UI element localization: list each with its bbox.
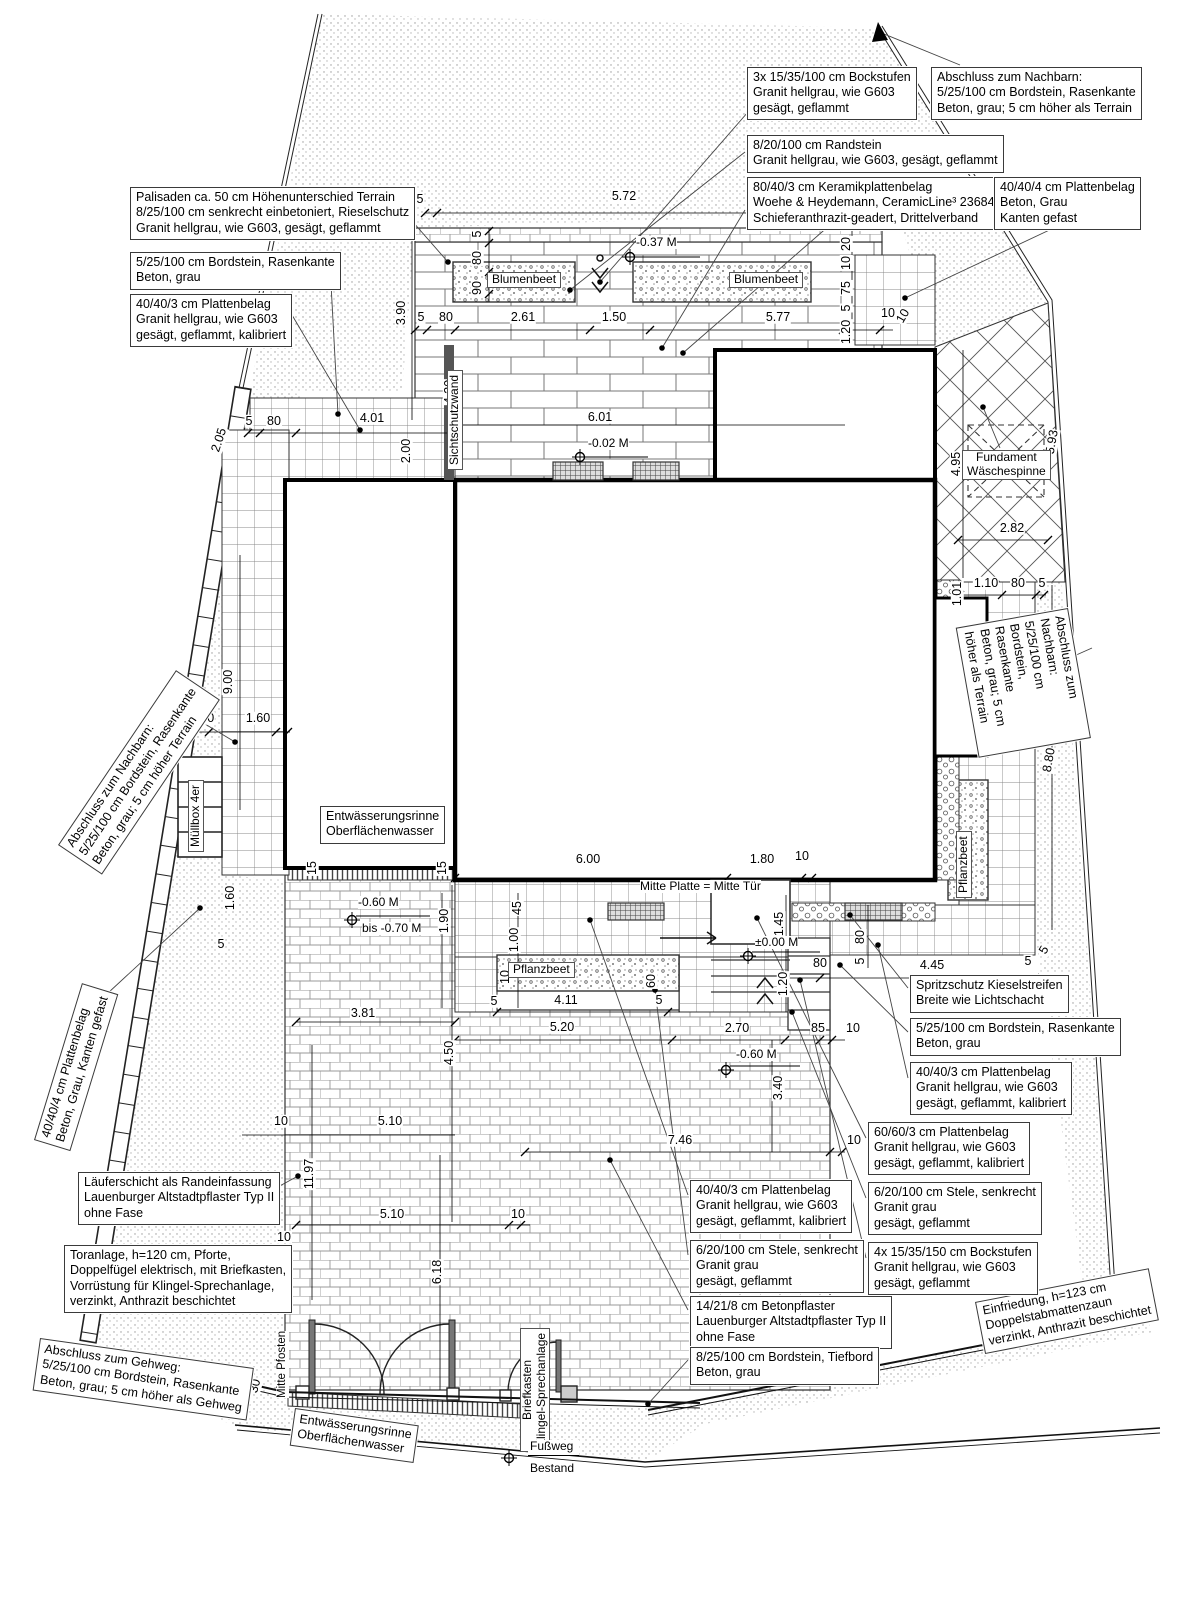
dim: 5 <box>655 994 664 1007</box>
dim: 80 <box>1010 577 1026 590</box>
annotation-stele-mid: 6/20/100 cm Stele, senkrecht Granit grau… <box>690 1240 864 1293</box>
annotation-palisaden: Palisaden ca. 50 cm Höhenunterschied Ter… <box>130 187 415 240</box>
dim: 5 <box>217 938 226 951</box>
dim: 80 <box>266 415 282 428</box>
dim: 4.01 <box>359 412 385 425</box>
annotation-bordstein-right: 5/25/100 cm Bordstein, Rasenkante Beton,… <box>910 1018 1121 1056</box>
dim: 5 <box>416 193 425 206</box>
dim: 90 <box>471 280 484 296</box>
annotation-laeuferschicht: Läuferschicht als Randeinfassung Lauenbu… <box>78 1172 280 1225</box>
dim: 3.90 <box>395 300 408 326</box>
label-bestand: Bestand <box>528 1462 576 1475</box>
dim: 80 <box>471 250 484 266</box>
dim: 2.82 <box>999 522 1025 535</box>
annotation-bockstufen-4x: 4x 15/35/150 cm Bockstufen Granit hellgr… <box>868 1242 1038 1295</box>
dim: 80 <box>438 311 454 324</box>
dim: 1.90 <box>438 908 451 934</box>
dim: 10 <box>273 1115 289 1128</box>
dim: 5 <box>1024 955 1033 968</box>
annotation-toranlage: Toranlage, h=120 cm, Pforte, Doppelfügel… <box>64 1245 292 1313</box>
dim: 5 <box>417 311 426 324</box>
annotation-abschluss-nachbar-top: Abschluss zum Nachbarn: 5/25/100 cm Bord… <box>931 67 1142 120</box>
dim: 1.00 <box>508 927 521 953</box>
label-mitte-pfosten: Mitte Pfosten <box>276 1331 289 1398</box>
annotation-platten-403-right: 40/40/3 cm Plattenbelag Granit hellgrau,… <box>910 1062 1072 1115</box>
dim: 6.01 <box>587 411 613 424</box>
annotation-randstein: 8/20/100 cm Randstein Granit hellgrau, w… <box>747 135 1004 173</box>
dim: 10 <box>510 1208 526 1221</box>
dim: 3.81 <box>350 1007 376 1020</box>
annotation-platten-404-top: 40/40/4 cm Plattenbelag Beton, Grau Kant… <box>994 177 1141 230</box>
dim: 15 <box>436 860 449 876</box>
dim: 5.20 <box>549 1021 575 1034</box>
dim: 1.80 <box>749 853 775 866</box>
dim: 3.40 <box>772 1075 785 1101</box>
dim: 10 <box>276 1231 292 1244</box>
site-plan: Palisaden ca. 50 cm Höhenunterschied Ter… <box>0 0 1200 1600</box>
dim: 1.50 <box>601 311 627 324</box>
annotation-bockstufen-3x: 3x 15/35/100 cm Bockstufen Granit hellgr… <box>747 67 917 120</box>
annotation-abschluss-nachbar-right: Abschluss zum Nachbarn: 5/25/100 cm Bord… <box>956 608 1091 758</box>
dim: 10 <box>794 850 810 863</box>
dim: 6.00 <box>575 853 601 866</box>
label-fussweg: Fußweg <box>528 1440 579 1456</box>
dim: 1.20 <box>777 971 790 997</box>
dim: 1.20 <box>840 319 853 345</box>
elevation-002: -0.02 M <box>588 437 629 450</box>
label-mitte-platte: Mitte Platte = Mitte Tür <box>640 880 761 893</box>
label-blumenbeet-1: Blumenbeet <box>487 272 561 288</box>
dim: 2.00 <box>400 438 413 464</box>
annotation-rinne-garage: Entwässerungsrinne Oberflächenwasser <box>320 806 445 844</box>
dim: 2.61 <box>510 311 536 324</box>
label-briefkasten: Briefkasten Klingel-Sprechanlage <box>520 1328 550 1452</box>
dim: 5 <box>854 957 867 966</box>
dim: 85 <box>810 1022 826 1035</box>
dim: 10 <box>846 1134 862 1147</box>
house-main <box>455 480 935 880</box>
annotation-platten-403-left: 40/40/3 cm Plattenbelag Granit hellgrau,… <box>130 294 292 347</box>
dim: 1.60 <box>245 712 271 725</box>
dim: 4.95 <box>950 451 963 477</box>
elevation-060: -0.60 M <box>358 896 399 909</box>
elevation-070: bis -0.70 M <box>362 922 421 935</box>
elevation-000: ±0.00 M <box>755 936 798 949</box>
annotation-betonpflaster: 14/21/8 cm Betonpflaster Lauenburger Alt… <box>690 1296 892 1349</box>
dim: 5 <box>245 415 254 428</box>
annotation-tiefbord: 8/25/100 cm Bordstein, Tiefbord Beton, g… <box>690 1347 879 1385</box>
label-pflanzbeet-1: Pflanzbeet <box>508 962 575 978</box>
elevation-037: -0.37 M <box>636 236 677 249</box>
dim: 7.46 <box>667 1134 693 1147</box>
annotation-platten-403-mid: 40/40/3 cm Plattenbelag Granit hellgrau,… <box>690 1180 852 1233</box>
house-upper-wing <box>715 350 935 480</box>
label-fundament-waeschespinne: Fundament Wäschespinne <box>962 450 1051 480</box>
dim: 10 <box>840 255 853 271</box>
label-pflanzbeet-2: Pflanzbeet <box>956 831 972 898</box>
dim: 2.70 <box>724 1022 750 1035</box>
dim: 1.45 <box>773 911 786 937</box>
annotation-bordstein-left: 5/25/100 cm Bordstein, Rasenkante Beton,… <box>130 252 341 290</box>
dim: 20 <box>840 236 853 252</box>
dim: 4.11 <box>553 994 578 1007</box>
annotation-stele-right: 6/20/100 cm Stele, senkrecht Granit grau… <box>868 1182 1042 1235</box>
dim: 15 <box>306 860 319 876</box>
dim: 1.10 <box>973 577 999 590</box>
dim: 75 <box>840 280 853 296</box>
dim: 1.60 <box>224 885 237 911</box>
annotation-keramikplatten: 80/40/3 cm Keramikplattenbelag Woehe & H… <box>747 177 1001 230</box>
dim: 5.72 <box>611 190 637 203</box>
dim: 4.50 <box>443 1040 456 1066</box>
dim: 9.00 <box>222 669 235 695</box>
dim: 5.77 <box>765 311 791 324</box>
dim: 5.10 <box>379 1208 405 1221</box>
label-muellbox: Müllbox 4er <box>188 780 204 852</box>
dim: 5.10 <box>377 1115 403 1128</box>
label-sichtschutzwand: Sichtschutzwand <box>447 370 463 470</box>
dim: 5 <box>1038 577 1047 590</box>
dim: 80 <box>812 957 828 970</box>
dim: 60 <box>645 973 658 989</box>
dim: 11.97 <box>303 1158 316 1190</box>
elevation-060b: -0.60 M <box>736 1048 777 1061</box>
dim: 45 <box>511 900 524 916</box>
annotation-platten-603: 60/60/3 cm Plattenbelag Granit hellgrau,… <box>868 1122 1030 1175</box>
dim: 6.18 <box>431 1259 444 1285</box>
dim: 5 <box>490 995 499 1008</box>
dim: 5 <box>471 230 484 239</box>
dim: 10 <box>845 1022 861 1035</box>
dim: 80 <box>854 929 867 945</box>
label-blumenbeet-2: Blumenbeet <box>729 272 803 288</box>
dim: 1.01 <box>951 581 964 607</box>
dim: 5 <box>840 304 853 313</box>
annotation-spritzschutz: Spritzschutz Kieselstreifen Breite wie L… <box>910 975 1069 1013</box>
dim: 4.45 <box>919 959 945 972</box>
